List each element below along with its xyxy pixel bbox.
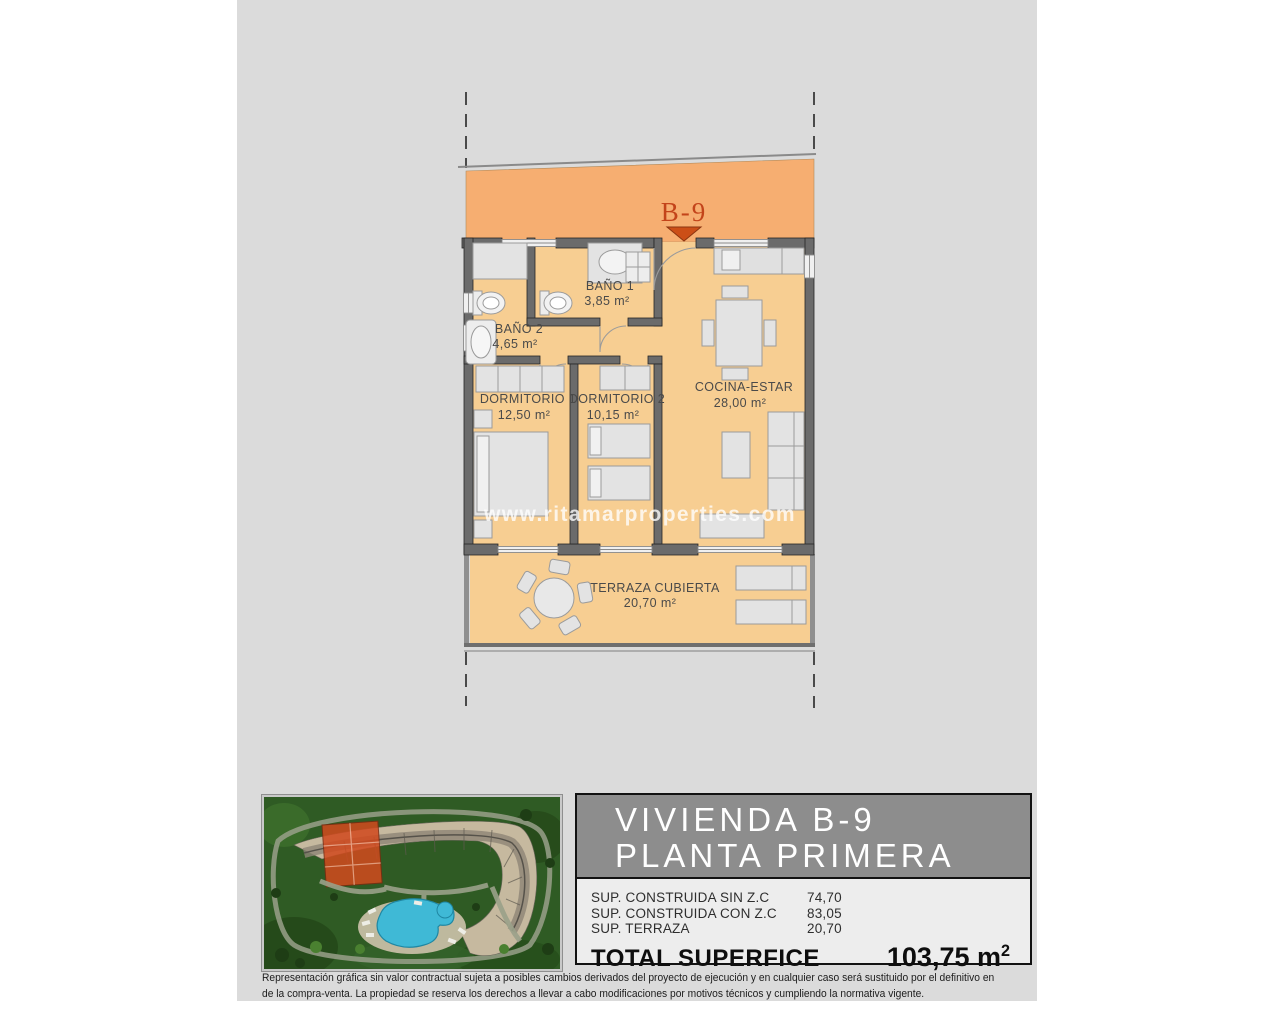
- surface-row-label: SUP. CONSTRUIDA CON Z.C: [591, 906, 807, 922]
- room-area-bano1: 3,85 m²: [584, 294, 629, 308]
- unit-title-bar: VIVIENDA B-9 PLANTA PRIMERA: [577, 795, 1030, 879]
- pool-jacuzzi: [437, 902, 453, 918]
- surface-rows: SUP. CONSTRUIDA SIN Z.C 74,70 SUP. CONST…: [577, 879, 1030, 937]
- room-label-dorm2: DORMITORIO 2: [569, 392, 665, 406]
- room-label-dorm1: DORMITORIO 1: [480, 392, 576, 406]
- room-label-bano1: BAÑO 1: [586, 279, 634, 293]
- aerial-photo-graphic: [264, 797, 560, 969]
- room-area-dorm1: 12,50 m²: [498, 408, 551, 422]
- room-label-cocina: COCINA-ESTAR: [695, 380, 793, 394]
- room-area-bano2: 4,65 m²: [492, 337, 537, 351]
- room-area-dorm2: 10,15 m²: [587, 408, 640, 422]
- room-area-terraza: 20,70 m²: [624, 596, 677, 610]
- disclaimer: Representación gráfica sin valor contrac…: [262, 971, 1092, 1002]
- watermark: www.ritamarproperties.com: [483, 503, 796, 526]
- unit-title-line1: VIVIENDA B-9: [615, 802, 1030, 838]
- unit-marker-label: B-9: [661, 197, 708, 227]
- room-label-terraza: TERRAZA CUBIERTA: [590, 581, 720, 595]
- surface-row-label: SUP. CONSTRUIDA SIN Z.C: [591, 890, 807, 906]
- highlighted-unit-block: [322, 821, 382, 887]
- surface-row-label: SUP. TERRAZA: [591, 921, 807, 937]
- surface-row-value: 74,70: [807, 890, 842, 906]
- disclaimer-line2: de la compra-venta. La propiedad se rese…: [262, 987, 1009, 1003]
- disclaimer-line1: Representación gráfica sin valor contrac…: [262, 971, 1009, 987]
- unit-info-panel: VIVIENDA B-9 PLANTA PRIMERA SUP. CONSTRU…: [575, 793, 1032, 965]
- surface-row: SUP. TERRAZA 20,70: [591, 921, 1030, 937]
- page: B-9: [0, 0, 1280, 1024]
- total-surface-value: 103,75 m2: [887, 942, 1010, 973]
- surface-row: SUP. CONSTRUIDA CON Z.C 83,05: [591, 906, 1030, 922]
- surface-row-value: 20,70: [807, 921, 842, 937]
- total-surface-row: TOTAL SUPERFICE 103,75 m2: [577, 937, 1030, 973]
- common-zone-band: [466, 159, 814, 242]
- unit-title-line2: PLANTA PRIMERA: [615, 838, 1030, 874]
- surface-row-value: 83,05: [807, 906, 842, 922]
- room-area-cocina: 28,00 m²: [714, 396, 767, 410]
- aerial-photo: [262, 795, 562, 971]
- total-surface-label: TOTAL SUPERFICE: [591, 945, 820, 973]
- surface-row: SUP. CONSTRUIDA SIN Z.C 74,70: [591, 890, 1030, 906]
- room-label-bano2: BAÑO 2: [495, 322, 543, 336]
